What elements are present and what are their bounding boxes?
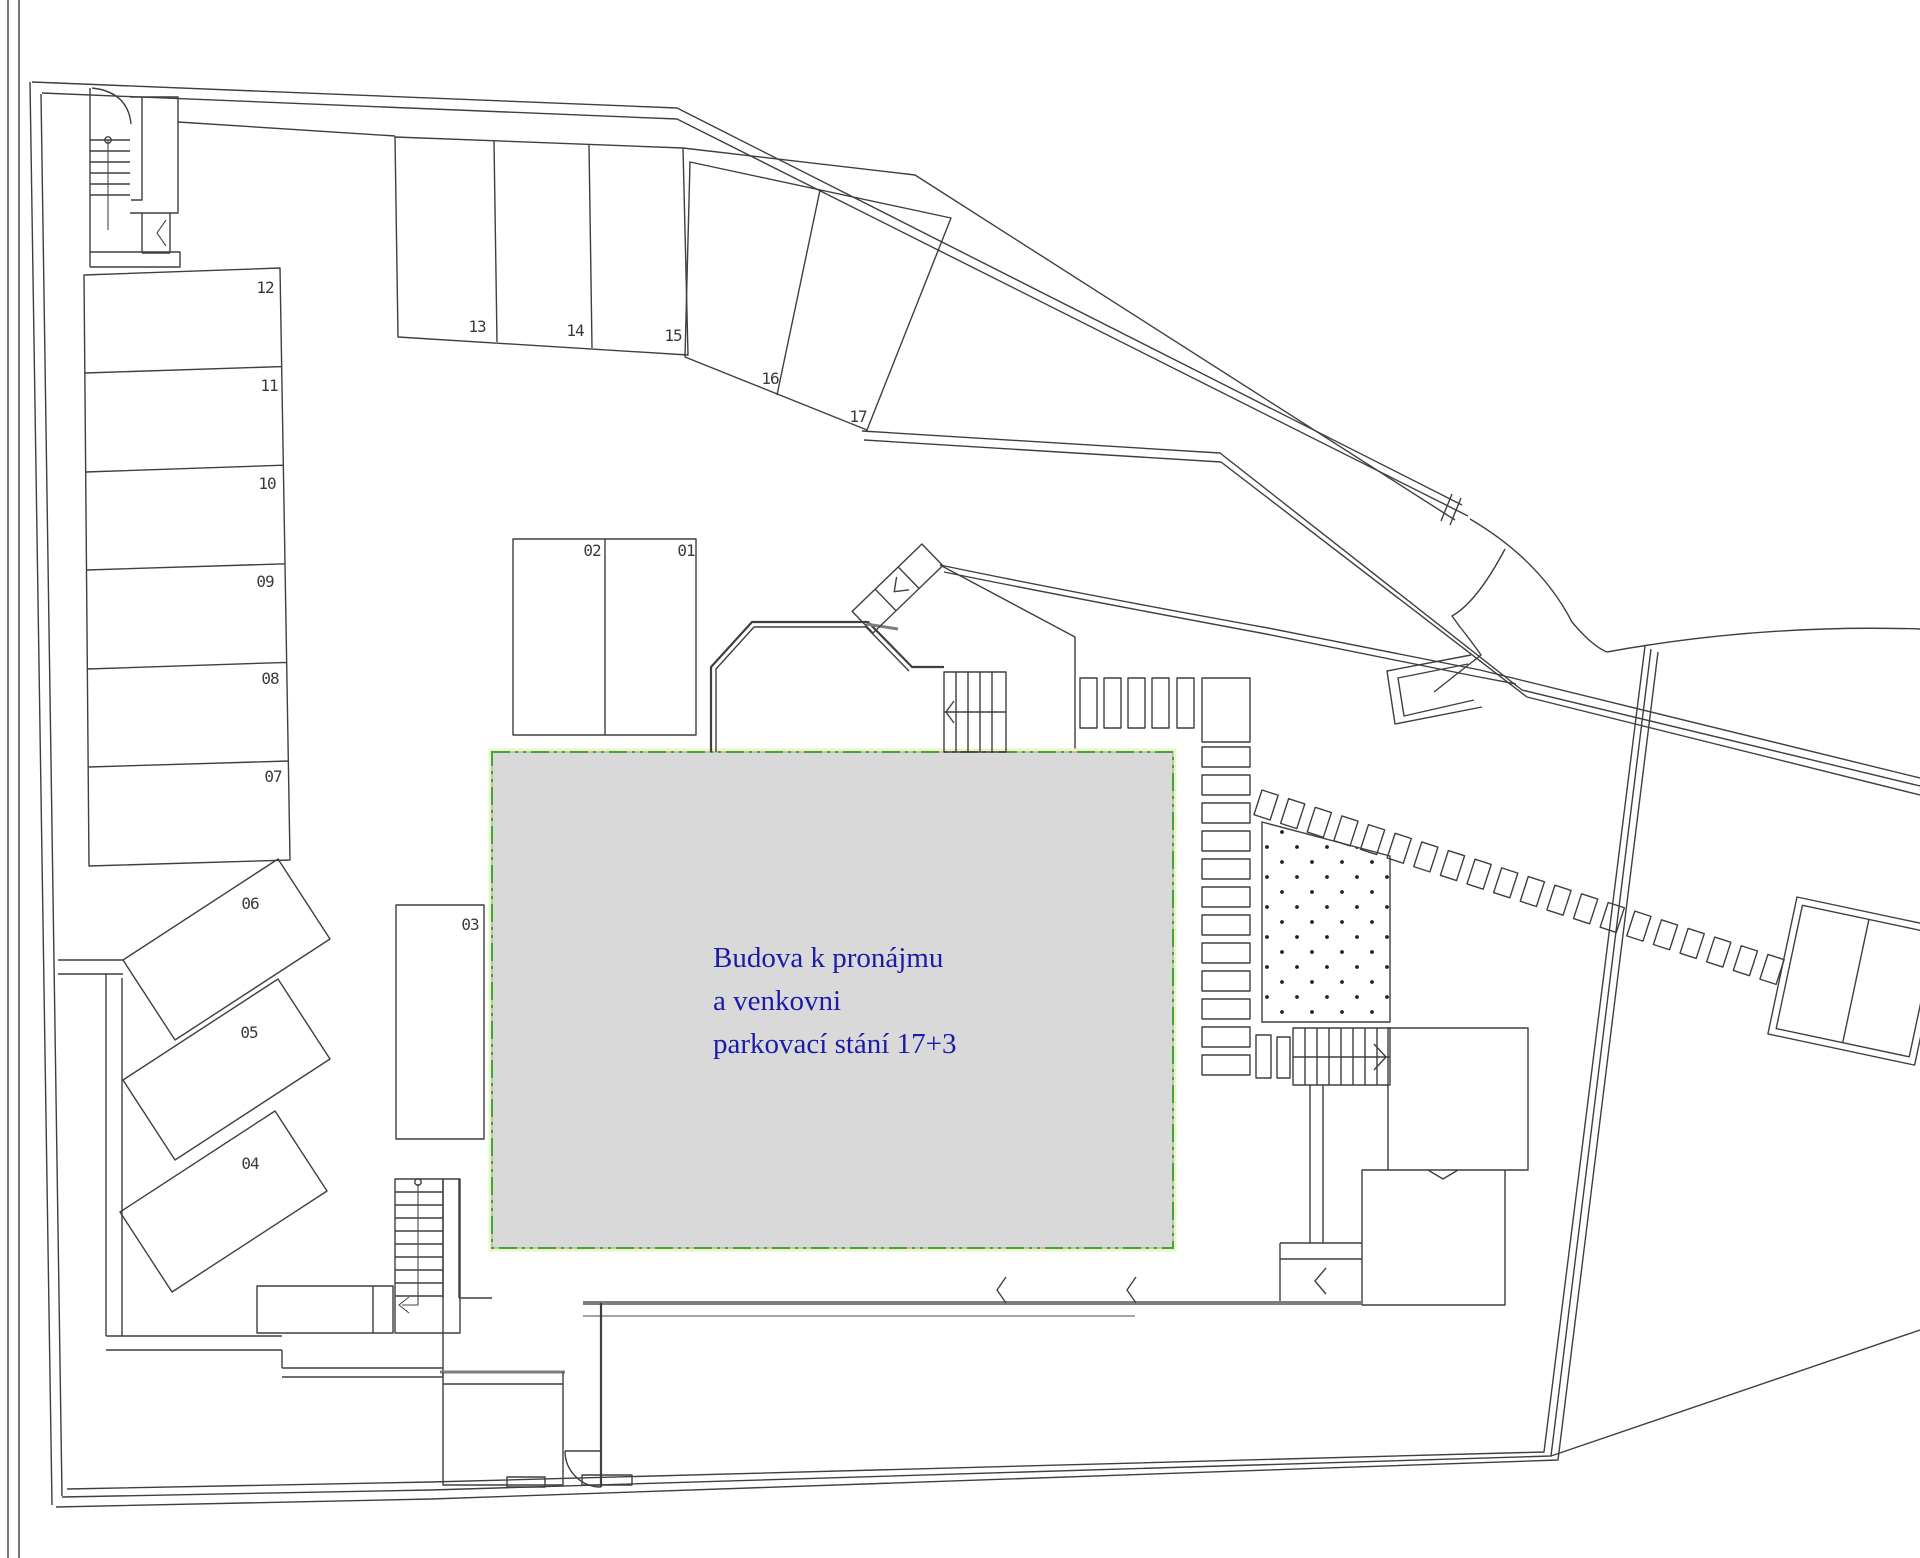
building-annotation-line3: parkovací stání 17+3 — [713, 1028, 956, 1060]
left-margin-line — [8, 0, 19, 1558]
small-stall-row — [1080, 678, 1194, 728]
far-right-garage-outline — [1768, 897, 1920, 1065]
upper-stair-lines — [90, 88, 180, 267]
bottom-room — [443, 1372, 563, 1485]
entry-ramp-outline — [852, 544, 943, 633]
parking-space-label-08: 08 — [261, 669, 279, 688]
top-parking-row: 13 14 15 — [395, 137, 688, 355]
offsite-road-lines — [1470, 519, 1920, 1456]
access-road-upper — [862, 431, 1920, 795]
tilted-parking-outline — [685, 162, 951, 430]
left-parking-column: 12 11 10 09 08 07 — [84, 268, 290, 866]
diagonal-parking-outlines — [120, 859, 330, 1292]
parking-space-label-13: 13 — [468, 317, 486, 336]
upper-left-stair — [90, 88, 180, 267]
parking-space-label-12: 12 — [256, 278, 274, 297]
parking-space-label-01: 01 — [677, 541, 695, 560]
parking-space-03: 03 — [396, 905, 484, 1139]
br-rooms — [1362, 1028, 1528, 1305]
parking-space-label-15: 15 — [664, 326, 682, 345]
left-parking-column-outline — [84, 268, 290, 866]
access-roads — [862, 431, 1920, 795]
building-annotation-line2: a venkovni — [713, 985, 841, 1017]
br-small-cells — [1256, 1035, 1290, 1078]
parking-space-label-16: 16 — [761, 369, 779, 388]
left-court-walls — [58, 960, 492, 1377]
parking-pair-outline — [513, 539, 696, 735]
parking-space-label-09: 09 — [256, 572, 274, 591]
parking-space-03-outline — [396, 905, 484, 1139]
building-annotation-line1: Budova k pronájmu — [713, 942, 943, 974]
parking-space-label-05: 05 — [240, 1023, 258, 1042]
upper-stair-walkline — [108, 140, 166, 246]
parking-space-label-07: 07 — [264, 767, 282, 786]
parking-space-label-17: 17 — [849, 407, 867, 426]
parking-space-label-10: 10 — [258, 474, 276, 493]
boundary-top-road — [32, 82, 1468, 516]
parking-space-label-03: 03 — [461, 915, 479, 934]
far-right-garage — [1768, 897, 1920, 1065]
octagon-stair — [944, 672, 1006, 752]
site-plan-canvas: Budova k pronájmu a venkovni parkovací s… — [0, 0, 1920, 1558]
br-walls — [1280, 1085, 1362, 1305]
bottom-door-leaf — [565, 1451, 601, 1487]
parking-space-label-04: 04 — [241, 1154, 259, 1173]
page-edge-lines — [8, 0, 19, 1558]
road-gate-ticks — [1441, 494, 1461, 525]
wall-door-marks — [997, 1277, 1136, 1303]
parking-space-label-02: 02 — [583, 541, 601, 560]
bottom-walls — [440, 1277, 1362, 1487]
forecourt-edge — [940, 565, 1075, 752]
parking-space-label-06: 06 — [241, 894, 259, 913]
octagon-wall-outer — [711, 622, 944, 752]
top-parking-row-outline — [395, 137, 688, 355]
building-for-rent: Budova k pronájmu a venkovni parkovací s… — [492, 752, 1173, 1248]
bottom-right-building — [1256, 1028, 1528, 1305]
left-court-wall-lines — [58, 960, 492, 1377]
diagonal-parking-04-06: 06 05 04 — [120, 859, 330, 1292]
parking-pair-01-02: 02 01 — [513, 539, 696, 735]
parking-space-label-11: 11 — [260, 376, 278, 395]
stair-side-room — [257, 1286, 393, 1333]
inner-fence-line — [178, 122, 1455, 520]
ladder-rungs — [1202, 747, 1250, 1075]
br-stair — [1293, 1028, 1390, 1085]
octagon-wall-inner — [716, 627, 909, 752]
tilted-parking-block: 16 17 — [685, 162, 951, 430]
stair-walkline — [399, 1184, 418, 1313]
floor-plan-page: Budova k pronájmu a venkovni parkovací s… — [0, 0, 1920, 1558]
entry-ramp — [852, 544, 943, 633]
br-door-notch — [1428, 1170, 1458, 1179]
parking-space-label-14: 14 — [566, 321, 584, 340]
lower-left-stair — [257, 1179, 460, 1333]
boundary-left — [30, 82, 62, 1505]
ladder-big-cell — [1202, 678, 1250, 742]
